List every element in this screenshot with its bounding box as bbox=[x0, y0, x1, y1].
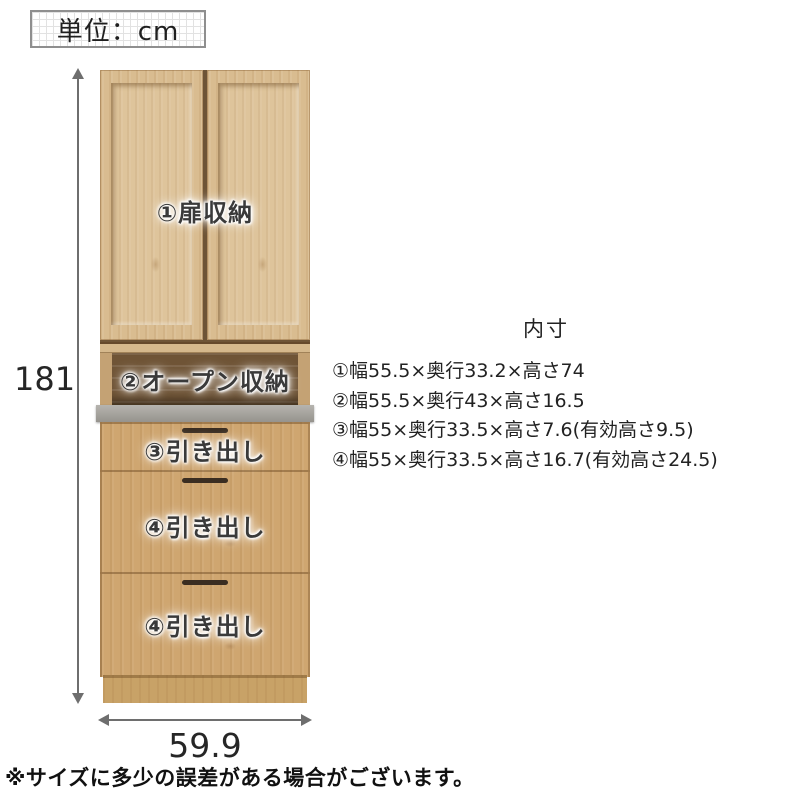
unit-label: 単位：cm bbox=[57, 11, 180, 48]
label-drawer-4a: ④引き出し bbox=[100, 508, 310, 543]
spec-line-2: ②幅55.5×奥行43×高さ16.5 bbox=[332, 387, 794, 417]
spec-line-1: ①幅55.5×奥行33.2×高さ74 bbox=[332, 357, 794, 387]
label-drawer-3: ③引き出し bbox=[100, 432, 310, 467]
height-dimension-arrow bbox=[77, 70, 79, 702]
width-dimension-arrow bbox=[100, 719, 310, 721]
drawer-handle bbox=[182, 580, 228, 585]
size-disclaimer-note: ※サイズに多少の誤差がある場合がございます。 bbox=[5, 762, 475, 792]
spec-line-3: ③幅55×奥行33.5×高さ7.6(有効高さ9.5) bbox=[332, 416, 794, 446]
inner-dimensions-heading: 内寸 bbox=[332, 313, 760, 343]
label-open-storage: ②オープン収納 bbox=[100, 362, 310, 397]
width-dimension-value: 59.9 bbox=[100, 726, 310, 765]
inner-dimensions-block: 内寸 ①幅55.5×奥行33.2×高さ74 ②幅55.5×奥行43×高さ16.5… bbox=[332, 313, 794, 475]
label-door-storage: ①扉収納 bbox=[100, 193, 310, 228]
cabinet-counter-top bbox=[96, 405, 314, 422]
unit-label-box: 単位：cm bbox=[30, 10, 206, 48]
drawer-handle bbox=[182, 478, 228, 483]
cabinet-shelf-edge bbox=[100, 344, 310, 353]
cabinet-base-plinth bbox=[103, 675, 307, 703]
spec-line-4: ④幅55×奥行33.5×高さ16.7(有効高さ24.5) bbox=[332, 446, 794, 476]
height-dimension-value: 181 bbox=[14, 360, 70, 398]
label-drawer-4b: ④引き出し bbox=[100, 607, 310, 642]
